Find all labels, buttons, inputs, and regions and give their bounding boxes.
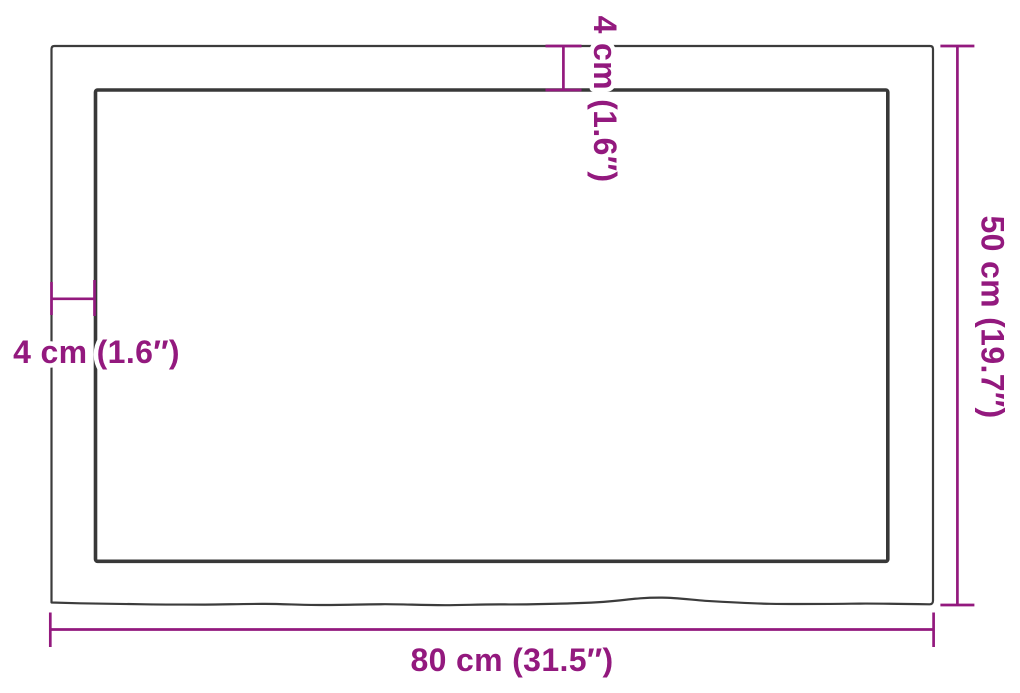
svg-text:4 cm (1.6″): 4 cm (1.6″) (587, 16, 623, 183)
svg-text:80 cm (31.5″): 80 cm (31.5″) (410, 642, 613, 678)
svg-text:50 cm (19.7″): 50 cm (19.7″) (975, 215, 1011, 418)
svg-text:4 cm (1.6″): 4 cm (1.6″) (13, 334, 180, 370)
